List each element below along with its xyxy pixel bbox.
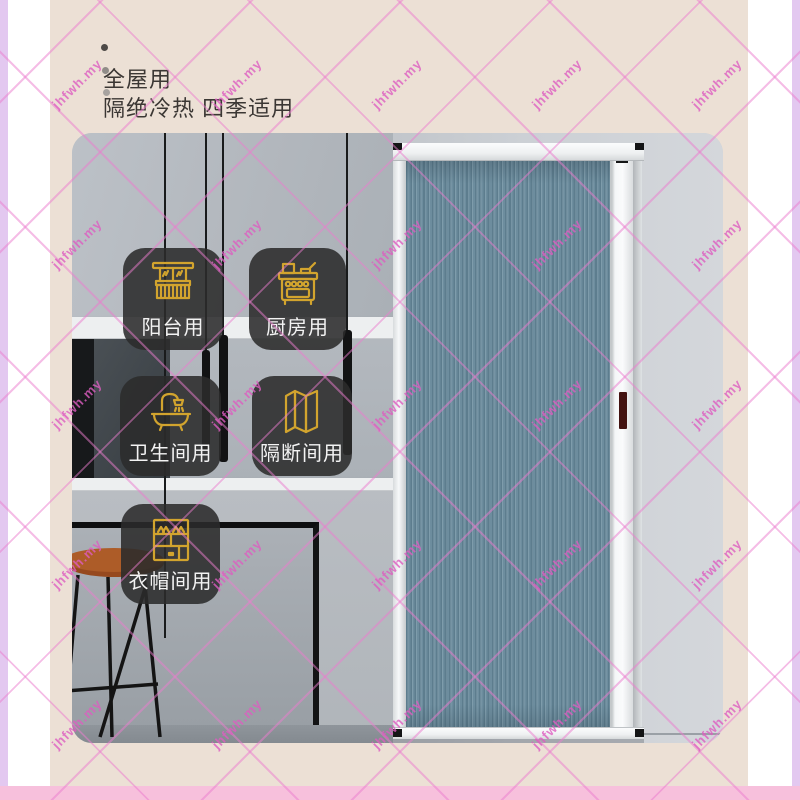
usage-badge-partition: 隔断间用 — [252, 376, 352, 476]
door-right-jamb — [633, 143, 642, 739]
bathtub-icon — [147, 388, 195, 432]
pendant-cord — [346, 133, 348, 333]
door-bottom-rail — [393, 727, 644, 739]
kitchen-stove-icon — [274, 260, 322, 306]
door-handle — [619, 392, 627, 429]
badge-label: 阳台用 — [142, 311, 205, 340]
left-white-strip — [8, 0, 50, 786]
usage-badge-kitchen: 厨房用 — [249, 248, 346, 350]
usage-badge-cloakroom: 衣帽间用 — [121, 504, 220, 604]
bullet-dot — [101, 44, 108, 51]
product-image-canvas: 全屋用 隔绝冷热 四季适用 — [0, 0, 800, 800]
folding-screen-icon — [280, 388, 324, 436]
door-left-jamb — [393, 143, 406, 739]
usage-badge-bathroom: 卫生间用 — [120, 376, 221, 476]
balcony-icon — [149, 260, 197, 306]
badge-label: 衣帽间用 — [129, 565, 213, 594]
top-rail-end-cap — [393, 143, 402, 150]
bottom-rail-end-cap — [635, 729, 644, 737]
bottom-pink-bar — [0, 786, 800, 800]
door-top-rail — [393, 143, 644, 161]
shelf-band-lower — [72, 478, 393, 491]
page-title: 全屋用 — [103, 65, 172, 94]
badge-label: 隔断间用 — [260, 437, 344, 466]
wardrobe-icon — [149, 516, 193, 564]
right-purple-strip — [792, 0, 800, 800]
watermark-text: jhfwh.my — [529, 56, 585, 112]
bottom-rail-end-cap — [393, 729, 402, 737]
badge-label: 卫生间用 — [129, 437, 213, 466]
right-white-strip — [748, 0, 792, 786]
watermark-text: jhfwh.my — [369, 56, 425, 112]
pleated-screen-panel — [406, 161, 610, 727]
page-subtitle: 隔绝冷热 四季适用 — [103, 94, 294, 123]
door-floor-shadow — [393, 739, 644, 743]
baseboard-line — [642, 733, 723, 735]
watermark-text: jhfwh.my — [49, 56, 105, 112]
top-rail-end-cap — [635, 143, 644, 150]
left-purple-strip — [0, 0, 8, 800]
badge-label: 厨房用 — [266, 311, 329, 340]
watermark-text: jhfwh.my — [689, 56, 745, 112]
door-pull-bar — [610, 157, 633, 739]
usage-badge-balcony: 阳台用 — [123, 248, 223, 350]
